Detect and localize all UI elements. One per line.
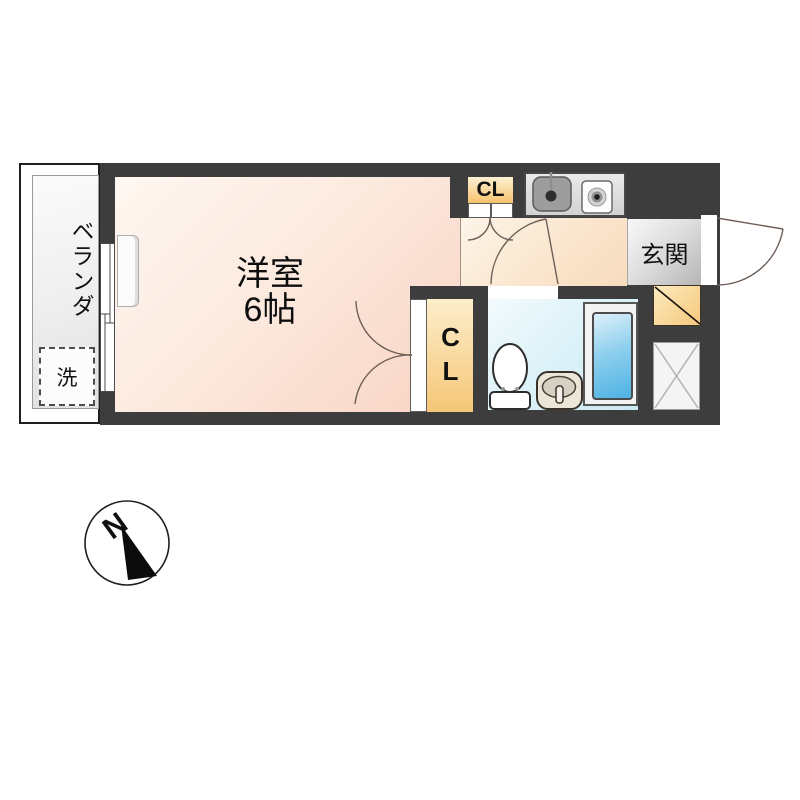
wall-segment [450,177,468,218]
compass-north-label: N [97,506,134,545]
bathtub [583,302,638,406]
entry-door-arc [717,229,783,285]
compass-needle-icon [121,525,157,580]
wall-segment [410,286,488,299]
entry-door-opening [701,215,717,285]
kitchen-corridor [460,218,627,286]
shoe-cabinet [653,285,701,326]
door-panel [468,203,491,218]
window-sliding-panel [117,235,139,307]
entrance-area: 玄関 [627,219,701,285]
washing-machine-area: 洗 [39,347,95,406]
closet-main: CL [427,299,473,412]
balcony-floor: ベランダ 洗 [32,175,99,409]
kitchen-counter [524,172,626,217]
compass-circle [85,501,169,585]
floor-plan: ベランダ 洗 洋室 6帖 CL 玄関 CL [0,0,800,800]
balcony: ベランダ 洗 [19,163,100,424]
entry-door-panel [717,218,783,229]
closet-top-doors [468,203,513,218]
closet-top: CL [468,177,513,203]
balcony-window [100,243,115,392]
wall-segment [473,299,488,412]
closet-top-label: CL [477,178,505,202]
closet-main-doors [410,299,427,412]
pipe-space [653,342,700,410]
bathtub-basin [592,312,633,400]
washer-label: 洗 [57,362,78,392]
closet-main-label: CL [435,322,466,390]
main-room-label: 洋室 6帖 [170,256,370,328]
door-panel [491,203,514,218]
room-name: 洋室 [170,256,370,292]
balcony-label: ベランダ [33,204,98,334]
bathroom-door-opening [488,286,558,299]
room-size: 6帖 [170,292,370,328]
entrance-label: 玄関 [641,235,689,270]
